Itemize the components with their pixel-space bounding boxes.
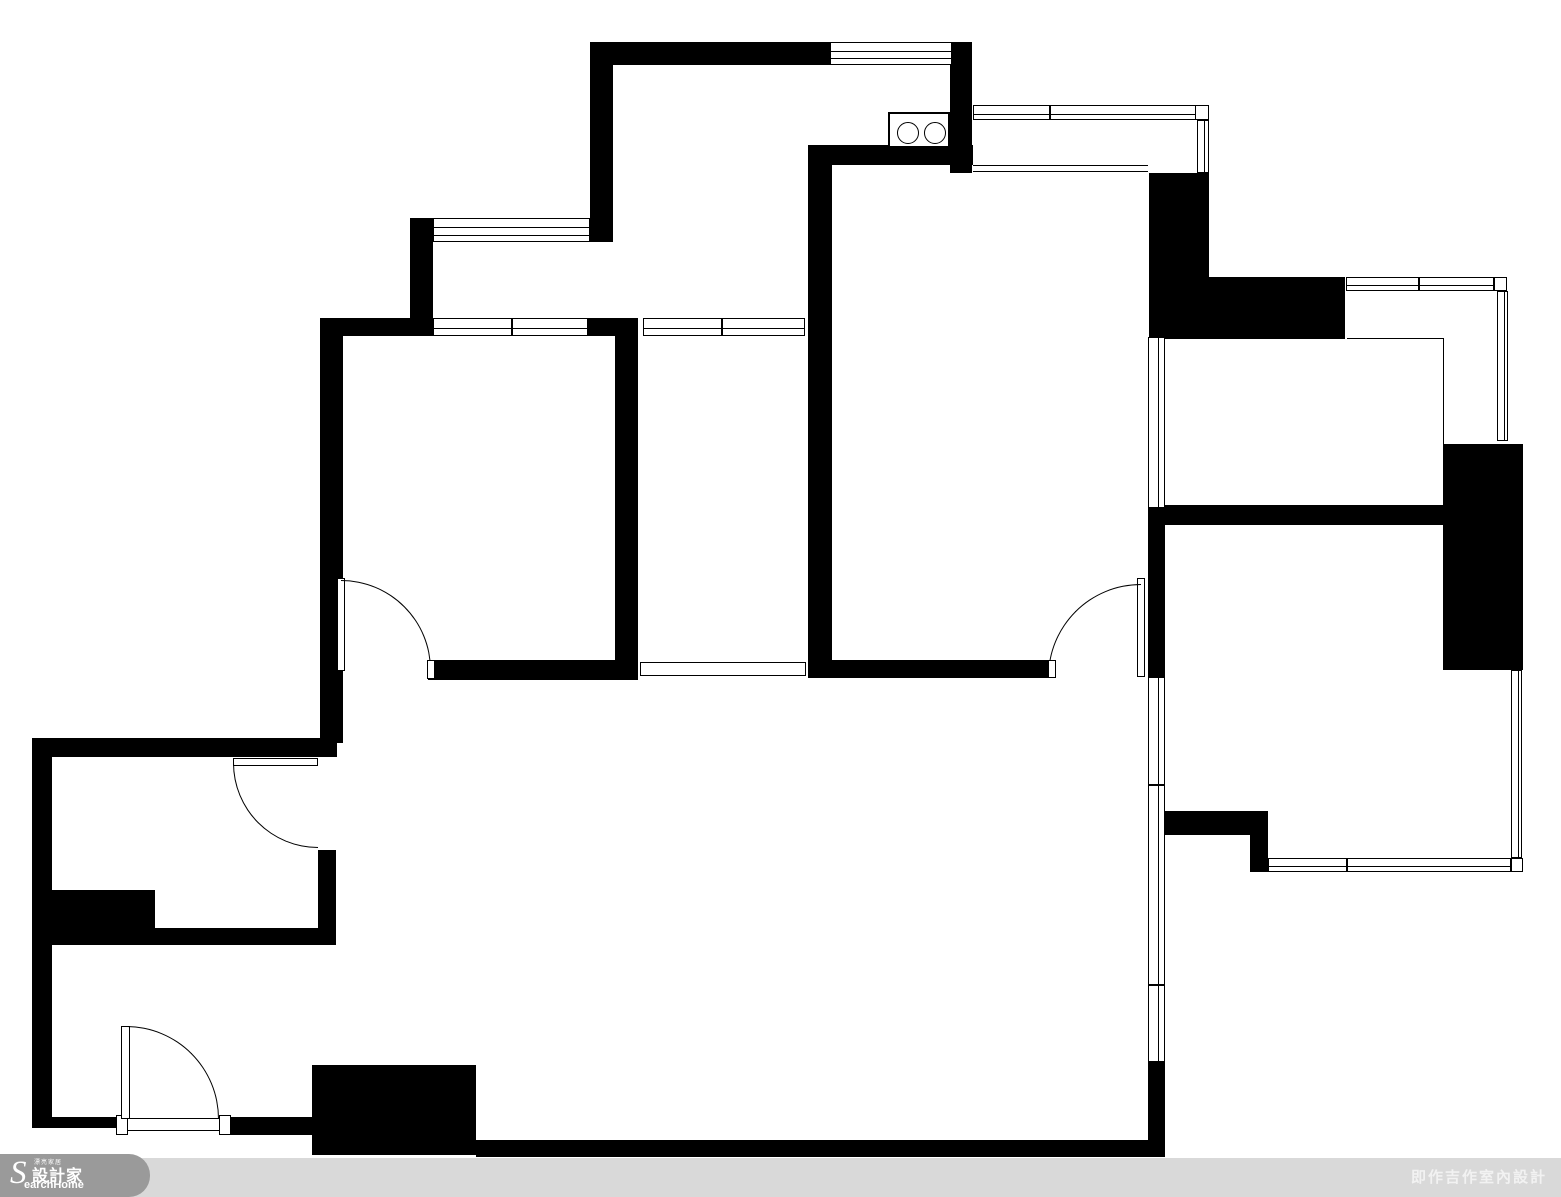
wall-segment bbox=[228, 1117, 312, 1135]
window bbox=[973, 105, 1197, 120]
floor-edge-line bbox=[973, 171, 1148, 172]
window-pane-line bbox=[1158, 338, 1159, 507]
window-pane-line bbox=[1518, 671, 1519, 857]
stove bbox=[888, 112, 950, 148]
window-pane-line bbox=[831, 51, 951, 52]
wall-segment bbox=[1148, 1062, 1165, 1157]
wall-segment bbox=[52, 928, 336, 945]
wall-segment bbox=[808, 145, 973, 165]
wall-segment bbox=[1149, 277, 1345, 339]
window-pane-line bbox=[1347, 285, 1493, 286]
stove-burner-icon bbox=[897, 122, 919, 144]
wall-segment bbox=[32, 738, 337, 757]
floor-edge-line bbox=[1443, 338, 1444, 444]
brand-logo-latin: earchHome bbox=[24, 1179, 84, 1191]
entry-door-swing-arc bbox=[126, 1026, 219, 1119]
wall-segment bbox=[32, 738, 52, 1128]
wall-segment bbox=[588, 318, 638, 336]
wall-segment bbox=[428, 660, 638, 680]
window bbox=[1148, 337, 1165, 508]
wall-segment bbox=[615, 336, 638, 680]
window-pane-line bbox=[434, 235, 589, 236]
window-mullion bbox=[721, 319, 723, 335]
wall-segment bbox=[32, 1117, 120, 1128]
window bbox=[1511, 858, 1523, 872]
wall-segment bbox=[312, 1065, 476, 1155]
floorplan-screenshot: S 漂亮家居 設計家 earchHome 即作吉作室內設計 bbox=[0, 0, 1561, 1197]
window-pane-line bbox=[644, 328, 804, 329]
window-pane-line bbox=[1504, 292, 1505, 440]
wall-segment bbox=[1148, 505, 1445, 525]
window-mullion bbox=[511, 319, 513, 335]
window-pane-line bbox=[831, 58, 951, 59]
bathroom-door-swing-arc bbox=[233, 763, 318, 848]
window bbox=[643, 318, 805, 336]
window bbox=[640, 662, 806, 676]
floor-edge-line bbox=[1347, 338, 1444, 339]
window bbox=[118, 1118, 231, 1131]
wall-segment bbox=[590, 42, 830, 65]
window bbox=[1197, 120, 1209, 173]
wall-segment bbox=[476, 1140, 1165, 1157]
wall-end-cap bbox=[1048, 660, 1056, 678]
floorplan-canvas bbox=[0, 0, 1561, 1158]
wall-segment bbox=[410, 218, 433, 318]
window-pane-line bbox=[434, 227, 589, 228]
window bbox=[1494, 277, 1507, 291]
window-pane-line bbox=[1269, 866, 1510, 867]
window-mullion bbox=[1418, 278, 1420, 290]
stove-burner-icon bbox=[924, 122, 946, 144]
window bbox=[1346, 277, 1494, 291]
wall-segment bbox=[1149, 173, 1209, 279]
designer-credit: 即作吉作室內設計 bbox=[1411, 1158, 1547, 1197]
window bbox=[433, 218, 590, 242]
wall-segment bbox=[52, 890, 155, 930]
wall-segment bbox=[808, 145, 832, 678]
wall-segment bbox=[320, 318, 343, 743]
window bbox=[830, 42, 952, 65]
wall-segment bbox=[830, 660, 1050, 678]
dining-door-swing-arc bbox=[1048, 584, 1141, 677]
window bbox=[1148, 677, 1165, 1062]
wall-segment bbox=[1443, 444, 1523, 670]
wall-segment bbox=[590, 42, 613, 242]
wall-segment bbox=[1148, 811, 1268, 835]
window bbox=[1195, 105, 1209, 120]
window bbox=[1268, 858, 1511, 872]
window-mullion bbox=[1346, 859, 1348, 871]
window bbox=[219, 1115, 231, 1135]
window-mullion bbox=[1049, 106, 1051, 119]
window bbox=[1497, 291, 1508, 441]
window-pane-line bbox=[1158, 678, 1159, 1061]
brand-logo: S 漂亮家居 設計家 earchHome bbox=[0, 1154, 150, 1197]
wall-end-cap bbox=[427, 660, 435, 679]
wall-segment bbox=[1148, 520, 1165, 677]
window bbox=[433, 318, 588, 336]
window-mullion bbox=[1149, 984, 1164, 986]
wall-segment bbox=[1250, 835, 1268, 872]
floor-edge-line bbox=[973, 165, 1148, 166]
window bbox=[1511, 670, 1522, 858]
wall-segment bbox=[318, 850, 336, 945]
bedroom1-door-swing-arc bbox=[341, 580, 431, 670]
window-pane-line bbox=[974, 114, 1196, 115]
footer-bar: S 漂亮家居 設計家 earchHome 即作吉作室內設計 bbox=[0, 1158, 1561, 1197]
window-pane-line bbox=[1204, 121, 1205, 172]
window-mullion bbox=[1149, 784, 1164, 786]
